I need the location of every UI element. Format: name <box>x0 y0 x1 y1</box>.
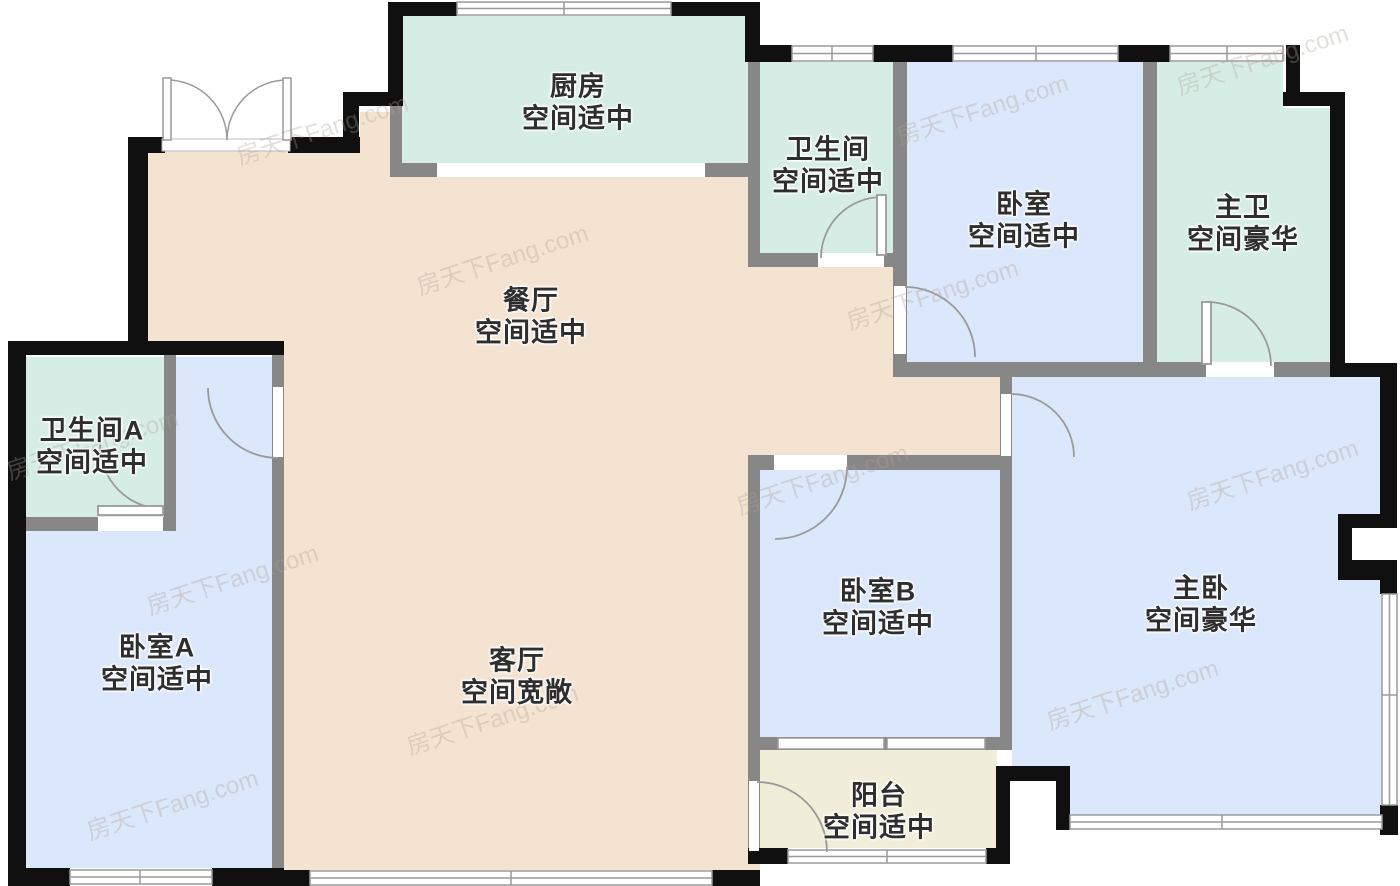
bedroom-b-balcony-window <box>778 738 884 749</box>
room-label-bathroom-a: 卫生间A 空间适中 <box>36 415 148 480</box>
room-assessment: 空间适中 <box>101 664 213 696</box>
room-name: 厨房 <box>522 71 634 103</box>
room-name: 卫生间A <box>36 415 148 447</box>
room-label-balcony: 阳台 空间适中 <box>823 780 935 845</box>
room-label-bathroom: 卫生间 空间适中 <box>772 134 884 199</box>
room-assessment: 空间豪华 <box>1145 605 1257 637</box>
room-assessment: 空间适中 <box>772 166 884 198</box>
room-name: 卫生间 <box>772 134 884 166</box>
room-assessment: 空间宽敞 <box>461 677 573 709</box>
master-bath-door-opening <box>1206 362 1274 377</box>
room-assessment: 空间适中 <box>36 447 148 479</box>
room-name: 客厅 <box>461 645 573 677</box>
master-bath-door-leaf <box>1202 302 1211 364</box>
entry-door-leaf-left <box>163 78 171 140</box>
master-bedroom-door-opening <box>1001 394 1011 456</box>
bathroom-door-opening <box>818 253 884 267</box>
room-label-bedroom-b: 卧室B 空间适中 <box>822 576 934 641</box>
room-label-master-bath: 主卫 空间豪华 <box>1187 192 1299 257</box>
room-label-bedroom-a: 卧室A 空间适中 <box>101 632 213 697</box>
room-name: 主卫 <box>1187 192 1299 224</box>
bedroom-b-balcony-window-2 <box>887 738 985 749</box>
bathroom-a-door-opening <box>98 517 163 531</box>
room-name: 卧室B <box>822 576 934 608</box>
floor-plan: 房天下Fang.com 房天下Fang.com 房天下Fang.com 房天下F… <box>0 0 1400 886</box>
room-label-living: 客厅 空间宽敞 <box>461 645 573 710</box>
floor-plan-canvas: 房天下Fang.com 房天下Fang.com 房天下Fang.com 房天下F… <box>0 0 1400 886</box>
kitchen-pass-opening <box>437 163 705 177</box>
room-assessment: 空间豪华 <box>1187 224 1299 256</box>
room-assessment: 空间适中 <box>475 317 587 349</box>
bedroom-a-door-opening <box>273 387 283 457</box>
bathroom-door-leaf <box>877 195 886 255</box>
room-label-master-bedroom: 主卧 空间豪华 <box>1145 573 1257 638</box>
room-name: 卧室 <box>968 189 1080 221</box>
room-label-bedroom: 卧室 空间适中 <box>968 189 1080 254</box>
room-assessment: 空间适中 <box>522 103 634 135</box>
room-assessment: 空间适中 <box>968 221 1080 253</box>
entry-door-arc-left <box>167 80 227 140</box>
room-assessment: 空间适中 <box>822 608 934 640</box>
room-label-kitchen: 厨房 空间适中 <box>522 71 634 136</box>
room-name: 卧室A <box>101 632 213 664</box>
room-assessment: 空间适中 <box>823 812 935 844</box>
room-name: 主卧 <box>1145 573 1257 605</box>
bathroom-a-door-leaf <box>98 506 163 515</box>
room-name: 餐厅 <box>475 285 587 317</box>
room-label-dining: 餐厅 空间适中 <box>475 285 587 350</box>
room-name: 阳台 <box>823 780 935 812</box>
balcony-door-opening <box>749 781 759 851</box>
